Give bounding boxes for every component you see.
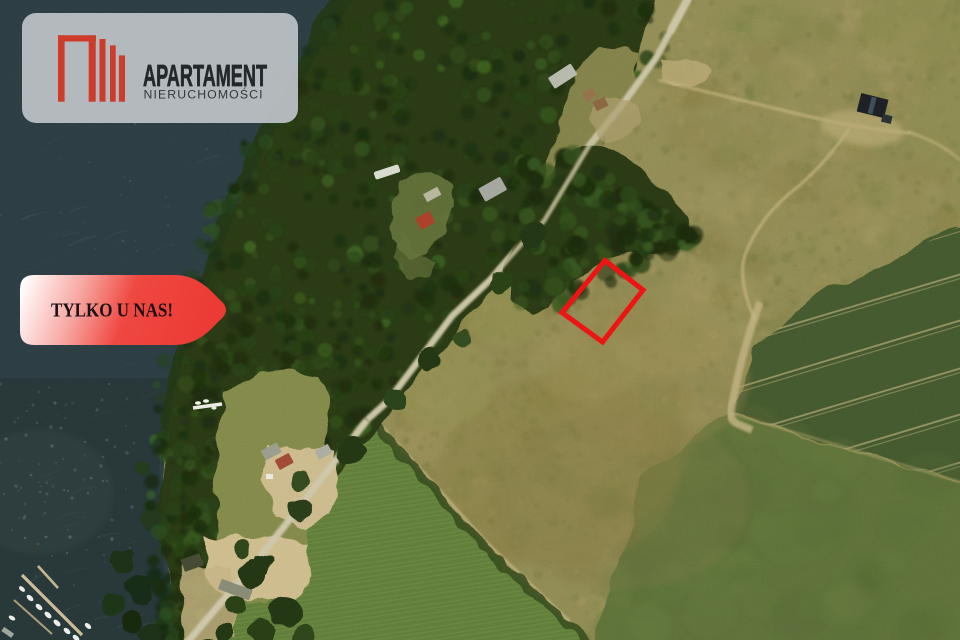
svg-text:NIERUCHOMOŚCI: NIERUCHOMOŚCI	[144, 87, 263, 102]
svg-text:TYLKO U NAS!: TYLKO U NAS!	[51, 301, 173, 322]
